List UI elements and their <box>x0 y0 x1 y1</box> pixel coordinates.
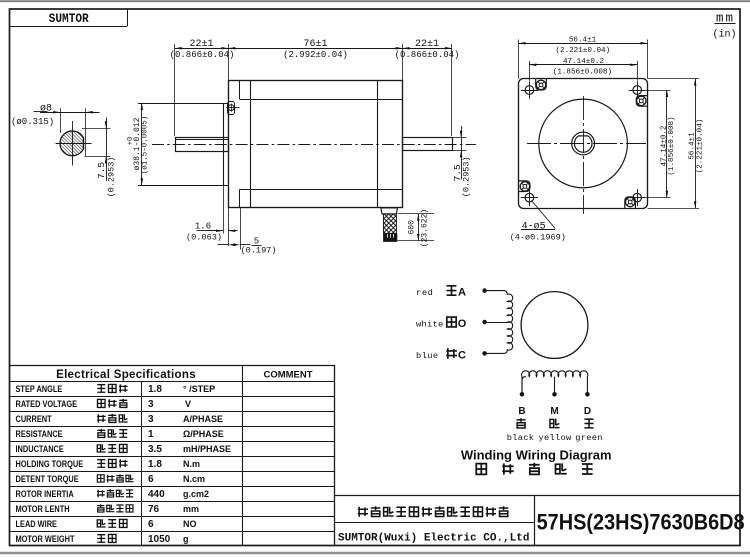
svg-text:CURRENT: CURRENT <box>16 413 53 424</box>
svg-text:(2.992±0.04): (2.992±0.04) <box>283 50 348 60</box>
svg-text:yellow: yellow <box>538 433 572 443</box>
svg-text:(2.221±0.04): (2.221±0.04) <box>555 47 610 55</box>
svg-text:47.14±0.2: 47.14±0.2 <box>563 58 604 66</box>
svg-text:N.m: N.m <box>183 459 200 469</box>
svg-text:(1.856±0.008): (1.856±0.008) <box>668 116 676 175</box>
svg-text:HOLDING TORQUE: HOLDING TORQUE <box>16 458 84 469</box>
svg-text:STEP ANGLE: STEP ANGLE <box>16 383 63 394</box>
svg-text:(0.866±0.04): (0.866±0.04) <box>395 50 460 60</box>
svg-text:° /STEP: ° /STEP <box>183 384 215 394</box>
svg-text:NO: NO <box>183 519 197 529</box>
svg-text:g.cm2: g.cm2 <box>183 489 209 499</box>
svg-text:56.4±1: 56.4±1 <box>569 36 597 44</box>
svg-text:56.4±1: 56.4±1 <box>689 132 697 160</box>
svg-text:(0.063): (0.063) <box>186 232 222 242</box>
svg-text:6: 6 <box>148 474 154 485</box>
svg-text:A/PHASE: A/PHASE <box>183 414 223 424</box>
svg-text:COMMENT: COMMENT <box>263 370 312 381</box>
svg-text:440: 440 <box>148 489 165 500</box>
svg-text:red: red <box>416 288 433 298</box>
svg-text:white: white <box>416 320 444 330</box>
svg-text:76: 76 <box>148 504 160 515</box>
svg-text:MOTOR WEIGHT: MOTOR WEIGHT <box>16 533 76 544</box>
svg-text:mH/PHASE: mH/PHASE <box>183 444 231 454</box>
svg-text:g: g <box>183 534 189 544</box>
svg-text:(4-ø0.1969): (4-ø0.1969) <box>510 233 566 243</box>
svg-text:Ω/PHASE: Ω/PHASE <box>183 429 224 439</box>
svg-text:ROTOR INERTIA: ROTOR INERTIA <box>16 488 74 499</box>
svg-text:mm: mm <box>183 504 199 514</box>
svg-text:N.cm: N.cm <box>183 474 205 484</box>
svg-text:blue: blue <box>416 351 438 361</box>
svg-text:O: O <box>458 318 467 330</box>
svg-text:(ø1.5-0.0005): (ø1.5-0.0005) <box>142 116 150 175</box>
svg-text:LEAD WIRE: LEAD WIRE <box>16 518 58 529</box>
svg-text:(0.197): (0.197) <box>240 245 276 255</box>
svg-text:4-ø5: 4-ø5 <box>522 221 546 232</box>
svg-text:(0.866±0.04): (0.866±0.04) <box>170 50 235 60</box>
svg-text:1050: 1050 <box>148 534 171 545</box>
svg-text:SUMTOR: SUMTOR <box>49 11 90 26</box>
svg-text:22±1: 22±1 <box>415 39 439 50</box>
svg-text:A: A <box>458 287 466 299</box>
svg-text:(0.2953): (0.2953) <box>462 156 472 197</box>
svg-text:3: 3 <box>148 399 154 410</box>
svg-text:1.8: 1.8 <box>148 459 162 470</box>
svg-text:V: V <box>185 399 191 409</box>
svg-text:(ø0.315): (ø0.315) <box>11 117 54 127</box>
svg-text:Winding Wiring Diagram: Winding Wiring Diagram <box>461 448 612 463</box>
svg-text:RESISTANCE: RESISTANCE <box>16 428 63 439</box>
svg-text:3: 3 <box>148 414 154 425</box>
svg-text:B: B <box>518 406 525 417</box>
svg-text:(in): (in) <box>712 29 736 41</box>
svg-text:DETENT TORQUE: DETENT TORQUE <box>16 473 79 484</box>
svg-text:76±1: 76±1 <box>303 39 327 50</box>
svg-text:3.5: 3.5 <box>148 444 162 455</box>
svg-text:INDUCTANCE: INDUCTANCE <box>16 443 65 454</box>
svg-text:SUMTOR(Wuxi) Electric CO.,Ltd: SUMTOR(Wuxi) Electric CO.,Ltd <box>338 533 529 545</box>
svg-text:6: 6 <box>148 519 154 530</box>
svg-text:1.8: 1.8 <box>148 384 162 395</box>
svg-text:D: D <box>584 406 591 417</box>
svg-text:MOTOR LENTH: MOTOR LENTH <box>16 503 70 514</box>
svg-text:(1.856±0.008): (1.856±0.008) <box>553 68 612 76</box>
svg-text:black: black <box>507 433 535 443</box>
svg-text:22±1: 22±1 <box>189 39 213 50</box>
svg-text:C: C <box>458 350 466 362</box>
svg-text:(2.221±0.04): (2.221±0.04) <box>696 119 704 174</box>
svg-text:green: green <box>575 433 603 443</box>
svg-text:M: M <box>550 406 558 417</box>
svg-text:RATED VOLTAGE: RATED VOLTAGE <box>16 398 78 409</box>
svg-text:1: 1 <box>148 429 154 440</box>
svg-text:(23.622): (23.622) <box>421 209 430 247</box>
svg-text:600: 600 <box>408 220 417 235</box>
svg-text:Electrical Specifications: Electrical Specifications <box>56 369 196 381</box>
svg-text:57HS(23HS)7630B6D8: 57HS(23HS)7630B6D8 <box>537 509 745 534</box>
svg-text:(0.2953): (0.2953) <box>106 157 116 198</box>
